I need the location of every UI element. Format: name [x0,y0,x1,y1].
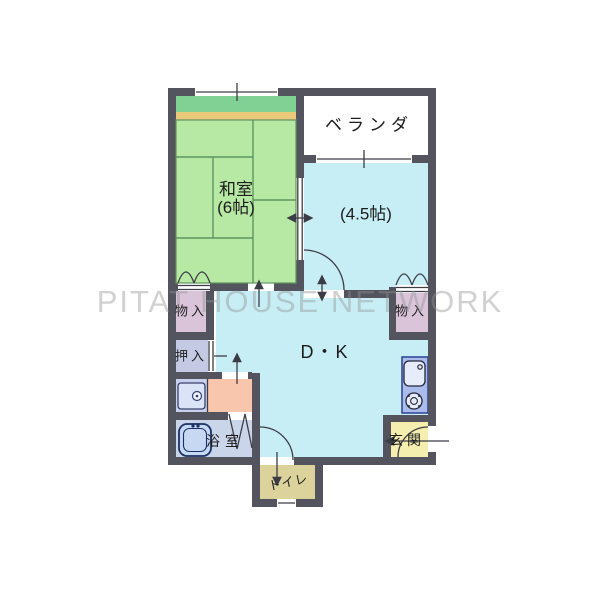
room-washitsu-wood-strip [176,112,296,120]
opening-washroom [222,372,248,379]
room-toilet-floor [260,463,315,499]
washroom-floor [208,379,252,412]
opening-washitsu-hall [248,283,274,291]
washbasin-icon [178,383,205,409]
closet-storage-left-floor [176,291,206,332]
opening-entry-door [428,426,436,452]
room-45-floor [304,163,428,290]
bathtub-icon [179,424,211,456]
room-washitsu-floor [176,120,296,283]
stove-icon [406,393,422,409]
opening-bathroom [228,412,252,420]
closet-oshiire-floor [176,340,208,372]
floorplan-drawing [0,0,600,600]
kitchen-sink-icon [404,361,425,386]
room-veranda-floor [304,96,428,155]
room-washitsu-ledge [176,96,296,112]
opening-room45-dk [304,290,344,298]
closet-storage-right-floor [396,293,428,332]
floorplan-canvas: ベランダ 和室 (6帖) (4.5帖) 物入 物入 押入 D・K 浴室 トイレ … [0,0,600,600]
